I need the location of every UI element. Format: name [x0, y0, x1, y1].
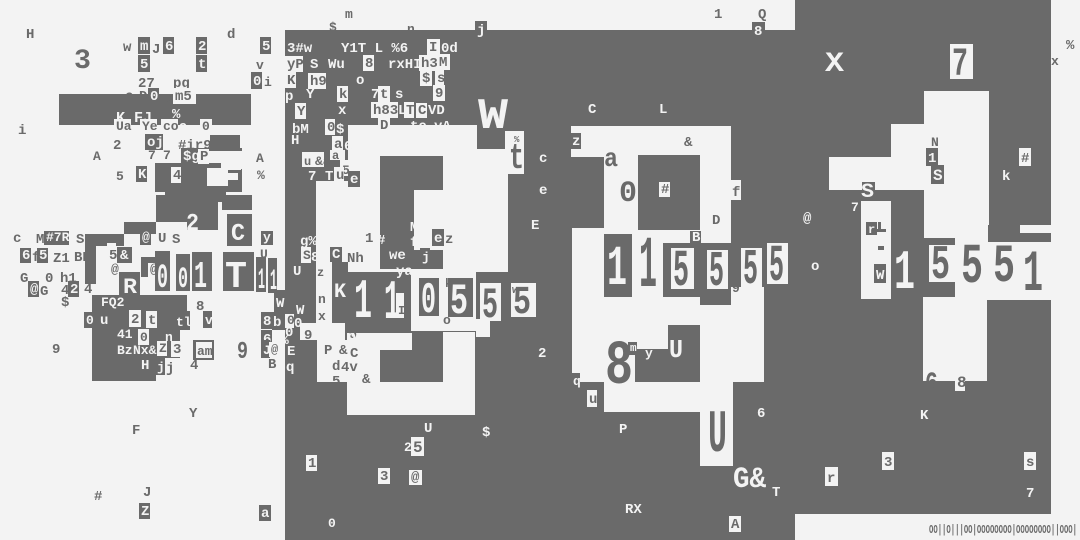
svg-text:5: 5	[769, 237, 784, 296]
svg-text:H: H	[26, 27, 34, 43]
svg-text:$: $	[336, 122, 344, 138]
svg-text:q: q	[573, 374, 581, 389]
svg-text:A: A	[93, 149, 101, 164]
svg-text:0: 0	[178, 263, 188, 297]
svg-text:Z: Z	[159, 341, 167, 356]
svg-text:0: 0	[327, 120, 335, 136]
svg-text:4: 4	[84, 282, 92, 298]
svg-text:m: m	[345, 7, 353, 22]
svg-text:6: 6	[344, 139, 352, 155]
svg-text:H: H	[291, 133, 299, 149]
svg-text:i: i	[18, 123, 26, 139]
svg-text:@: @	[111, 262, 119, 277]
svg-text:0: 0	[150, 89, 158, 105]
svg-text:$: $	[329, 20, 337, 35]
svg-text:yP: yP	[287, 57, 304, 73]
svg-text:5: 5	[673, 242, 689, 301]
svg-text:e: e	[539, 183, 547, 199]
svg-text:#: #	[377, 233, 385, 249]
svg-text:G&: G&	[733, 463, 766, 497]
svg-text:a: a	[261, 506, 270, 522]
svg-text:Nx&: Nx&	[133, 343, 157, 358]
svg-text:z: z	[317, 266, 324, 280]
svg-text:#: #	[661, 182, 669, 198]
svg-text:j: j	[157, 360, 165, 375]
svg-text:1: 1	[1023, 243, 1043, 308]
svg-text:&: &	[362, 372, 371, 388]
svg-text:c: c	[125, 89, 133, 105]
svg-text:L: L	[659, 102, 667, 118]
svg-text:am: am	[197, 344, 213, 359]
svg-text:P: P	[619, 422, 627, 438]
svg-text:Q: Q	[758, 7, 766, 23]
svg-text:@: @	[271, 343, 278, 357]
svg-text:6: 6	[925, 368, 938, 402]
svg-text:5: 5	[931, 239, 950, 293]
svg-text:5: 5	[413, 439, 423, 457]
svg-text:#: #	[94, 489, 102, 505]
svg-text:T: T	[225, 256, 247, 299]
svg-text:5: 5	[140, 57, 148, 73]
svg-text:6: 6	[22, 248, 30, 264]
svg-text:4: 4	[190, 358, 198, 374]
svg-text:#7R: #7R	[46, 230, 70, 245]
svg-text:1: 1	[714, 7, 722, 23]
svg-text:8: 8	[311, 250, 319, 266]
svg-text:7: 7	[163, 148, 171, 163]
svg-text:8: 8	[957, 374, 967, 392]
svg-text:5: 5	[993, 237, 1015, 298]
svg-text:N: N	[931, 135, 939, 150]
svg-text:p: p	[285, 89, 293, 105]
svg-text:1: 1	[194, 256, 207, 299]
svg-text:U: U	[669, 335, 683, 365]
svg-text:e: e	[350, 172, 358, 188]
svg-text:s: s	[395, 87, 403, 103]
svg-text:1: 1	[928, 151, 936, 167]
svg-text:S: S	[303, 248, 311, 263]
svg-text:o: o	[356, 73, 364, 89]
svg-text:I: I	[398, 304, 405, 318]
svg-text:RX: RX	[625, 502, 642, 518]
svg-text:$: $	[482, 425, 490, 441]
svg-text:D: D	[712, 213, 720, 229]
svg-text:S: S	[861, 181, 874, 204]
svg-text:1: 1	[258, 264, 265, 298]
svg-text:C: C	[588, 102, 597, 118]
svg-text:z: z	[572, 134, 580, 150]
svg-text:y: y	[645, 346, 653, 361]
svg-text:a: a	[332, 149, 339, 163]
svg-text:t: t	[198, 57, 206, 73]
svg-text:k: k	[339, 87, 347, 103]
svg-text:@: @	[30, 282, 39, 298]
svg-text:3: 3	[74, 46, 91, 77]
svg-text:@: @	[411, 470, 420, 486]
svg-text:K: K	[920, 408, 929, 424]
svg-text:u: u	[304, 155, 311, 169]
svg-text:%: %	[1066, 38, 1075, 54]
svg-text:1: 1	[270, 265, 277, 299]
svg-text:Y: Y	[297, 104, 306, 120]
svg-text:M: M	[36, 232, 44, 248]
svg-text:U: U	[424, 421, 432, 437]
svg-text:B: B	[268, 357, 277, 373]
svg-text:3#w: 3#w	[287, 41, 313, 57]
svg-text:5: 5	[262, 39, 270, 55]
svg-text:U: U	[293, 264, 301, 280]
svg-text:y: y	[263, 230, 271, 245]
svg-text:6: 6	[165, 39, 173, 55]
svg-text:2: 2	[131, 312, 139, 328]
svg-text:%: %	[514, 135, 520, 145]
svg-text:j: j	[422, 250, 430, 265]
svg-text:Bz: Bz	[117, 343, 133, 358]
svg-text:2: 2	[70, 282, 78, 298]
svg-text:W: W	[876, 268, 885, 284]
svg-text:9: 9	[52, 342, 60, 358]
svg-text:5: 5	[450, 277, 468, 327]
svg-text:$: $	[422, 71, 430, 87]
svg-text:7: 7	[1026, 486, 1034, 502]
svg-text:M: M	[439, 55, 447, 71]
svg-text:E: E	[531, 218, 539, 234]
svg-text:f: f	[410, 235, 418, 251]
svg-text:T: T	[406, 103, 414, 119]
svg-text:1: 1	[354, 270, 372, 334]
svg-text:4v: 4v	[341, 360, 358, 376]
svg-text:5: 5	[961, 236, 983, 300]
svg-text:%: %	[257, 168, 265, 183]
svg-text:P: P	[324, 343, 332, 359]
svg-text:I: I	[429, 40, 437, 56]
svg-text:u: u	[589, 392, 597, 408]
svg-text:5: 5	[39, 248, 47, 264]
svg-text:J: J	[152, 42, 160, 58]
svg-text:tc: tc	[410, 119, 427, 135]
svg-text:w: w	[123, 40, 132, 56]
svg-text:D: D	[139, 89, 147, 105]
svg-text:1: 1	[639, 225, 657, 308]
svg-text:d: d	[332, 359, 340, 375]
svg-text:v: v	[256, 58, 264, 73]
svg-text:C: C	[418, 103, 427, 119]
svg-text:6: 6	[757, 406, 765, 422]
svg-text:m: m	[140, 39, 148, 55]
svg-text:#: #	[1021, 151, 1029, 167]
svg-text:K: K	[287, 73, 296, 89]
svg-text:r: r	[827, 471, 835, 487]
svg-text:1: 1	[308, 456, 316, 472]
svg-text:co: co	[163, 119, 179, 134]
svg-text:m5: m5	[175, 89, 192, 105]
svg-text:i: i	[264, 75, 272, 90]
svg-text:BE: BE	[74, 250, 91, 266]
svg-text:R: R	[163, 93, 172, 109]
svg-text:5: 5	[116, 169, 124, 184]
svg-text:Z: Z	[141, 504, 149, 520]
svg-text:OO||O|||OO|OOOOOOOO|OOOOOOOO||: OO||O|||OO|OOOOOOOO|OOOOOOOO||OOO|	[929, 523, 1077, 537]
svg-text:W: W	[478, 92, 509, 142]
svg-text:5: 5	[332, 374, 340, 390]
svg-text:yA: yA	[434, 119, 451, 135]
svg-text:8: 8	[263, 314, 271, 330]
svg-text:0: 0	[253, 74, 261, 90]
svg-text:1: 1	[894, 241, 915, 305]
svg-text:K: K	[334, 281, 346, 304]
svg-text:c: c	[539, 151, 547, 167]
svg-text:0: 0	[619, 177, 637, 211]
svg-text:o: o	[443, 313, 451, 328]
svg-text:7: 7	[851, 200, 859, 215]
svg-text:U: U	[158, 231, 166, 247]
svg-text:&: &	[684, 135, 693, 151]
svg-text:K: K	[138, 167, 147, 183]
svg-text:s: s	[437, 71, 445, 87]
svg-text:t: t	[380, 87, 388, 103]
svg-text:B: B	[692, 230, 701, 246]
svg-text:n: n	[407, 22, 415, 37]
svg-text:E: E	[287, 344, 295, 360]
svg-text:9: 9	[435, 86, 443, 102]
svg-text:k: k	[445, 277, 452, 291]
svg-text:W: W	[276, 296, 285, 312]
svg-text:S: S	[310, 57, 318, 73]
svg-text:5: 5	[743, 242, 758, 299]
svg-text:3: 3	[173, 342, 181, 358]
svg-text:0: 0	[421, 276, 436, 326]
svg-text:G: G	[20, 271, 28, 287]
svg-text:Nh: Nh	[347, 251, 364, 267]
svg-text:9: 9	[732, 281, 740, 296]
svg-text:D: D	[380, 118, 388, 134]
svg-text:C: C	[332, 247, 341, 263]
svg-text:X: X	[825, 49, 844, 80]
svg-text:a: a	[604, 144, 618, 174]
svg-text:o: o	[811, 259, 819, 275]
svg-text:&: &	[339, 343, 348, 359]
svg-text:1: 1	[607, 238, 627, 302]
svg-text:we: we	[389, 248, 406, 264]
svg-text:$g: $g	[183, 149, 200, 165]
svg-text:2: 2	[198, 39, 206, 55]
svg-text:2: 2	[186, 211, 199, 238]
svg-text:1: 1	[365, 231, 373, 247]
svg-text:9: 9	[304, 328, 312, 344]
svg-text:@: @	[142, 230, 150, 245]
svg-text:m: m	[630, 343, 637, 355]
svg-text:Y1T L %6: Y1T L %6	[341, 41, 408, 57]
svg-text:S: S	[172, 232, 180, 248]
svg-text:T: T	[772, 485, 780, 501]
svg-text:c: c	[13, 231, 21, 247]
svg-text:0: 0	[328, 516, 336, 531]
svg-text:Y: Y	[306, 87, 315, 103]
svg-text:3: 3	[380, 469, 388, 485]
svg-text:4: 4	[173, 168, 181, 184]
svg-text:9: 9	[237, 339, 248, 366]
svg-text:F: F	[132, 423, 140, 439]
svg-text:j: j	[166, 361, 174, 377]
svg-text:J: J	[143, 485, 151, 501]
svg-text:b: b	[273, 315, 281, 331]
svg-text:5: 5	[482, 281, 498, 331]
svg-text:$: $	[61, 295, 69, 311]
svg-text:2: 2	[538, 346, 546, 362]
svg-text:x: x	[318, 309, 326, 324]
svg-text:h83: h83	[373, 103, 398, 119]
svg-text:0: 0	[86, 313, 94, 328]
svg-text:VD: VD	[428, 103, 445, 119]
svg-text:j: j	[477, 23, 485, 39]
svg-text:Wu: Wu	[328, 57, 345, 73]
svg-text:S: S	[76, 232, 84, 248]
svg-text:@: @	[803, 211, 812, 227]
svg-text:A: A	[256, 151, 264, 166]
svg-text:9: 9	[179, 121, 187, 137]
svg-text:Z1: Z1	[53, 251, 70, 267]
svg-text:z: z	[445, 232, 453, 248]
svg-text:s: s	[1026, 455, 1034, 471]
svg-text:v: v	[205, 313, 213, 328]
svg-text:h3: h3	[421, 56, 438, 72]
svg-text:u: u	[100, 313, 108, 329]
svg-text:8: 8	[605, 331, 633, 402]
svg-text:0: 0	[202, 119, 210, 134]
svg-text:A: A	[731, 517, 740, 533]
svg-text:T: T	[325, 169, 333, 185]
svg-text:x: x	[1051, 54, 1059, 69]
svg-text:2: 2	[404, 440, 412, 455]
svg-text:&a: &a	[315, 154, 331, 169]
svg-text:U: U	[708, 402, 727, 470]
svg-text:0: 0	[294, 316, 302, 332]
svg-text:7: 7	[148, 148, 156, 163]
svg-text:o: o	[348, 329, 356, 344]
svg-text:H: H	[141, 358, 149, 374]
svg-text:f: f	[732, 185, 740, 201]
svg-text:G: G	[40, 284, 48, 300]
svg-text:S: S	[933, 167, 943, 185]
svg-text:2: 2	[113, 138, 121, 154]
svg-text:R: R	[123, 275, 138, 300]
svg-text:C: C	[231, 221, 245, 248]
svg-text:&: &	[120, 248, 129, 264]
svg-text:0: 0	[157, 260, 168, 298]
svg-text:7: 7	[308, 169, 316, 185]
svg-text:d: d	[227, 27, 235, 43]
svg-text:Ua: Ua	[116, 119, 132, 134]
svg-text:Y: Y	[189, 406, 198, 422]
svg-text:Ye: Ye	[142, 119, 158, 134]
svg-text:k: k	[1002, 169, 1010, 185]
svg-text:M: M	[410, 220, 418, 236]
svg-text:rxHI: rxHI	[388, 57, 422, 73]
svg-text:x: x	[338, 103, 347, 119]
svg-text:n: n	[318, 292, 326, 307]
svg-text:FQ2: FQ2	[101, 295, 125, 310]
svg-text:7: 7	[952, 43, 968, 88]
svg-text:3: 3	[884, 455, 892, 471]
svg-text:e: e	[434, 231, 442, 247]
svg-text:u: u	[336, 168, 344, 184]
svg-text:t: t	[148, 313, 156, 329]
svg-text:41: 41	[117, 327, 133, 342]
svg-text:tl: tl	[176, 315, 192, 330]
svg-text:8: 8	[754, 24, 762, 40]
svg-text:5: 5	[709, 244, 724, 301]
svg-text:ya: ya	[396, 264, 413, 280]
svg-text:P: P	[200, 149, 208, 165]
svg-text:w: w	[512, 285, 519, 297]
svg-text:q: q	[286, 360, 294, 376]
svg-text:8: 8	[365, 56, 373, 72]
